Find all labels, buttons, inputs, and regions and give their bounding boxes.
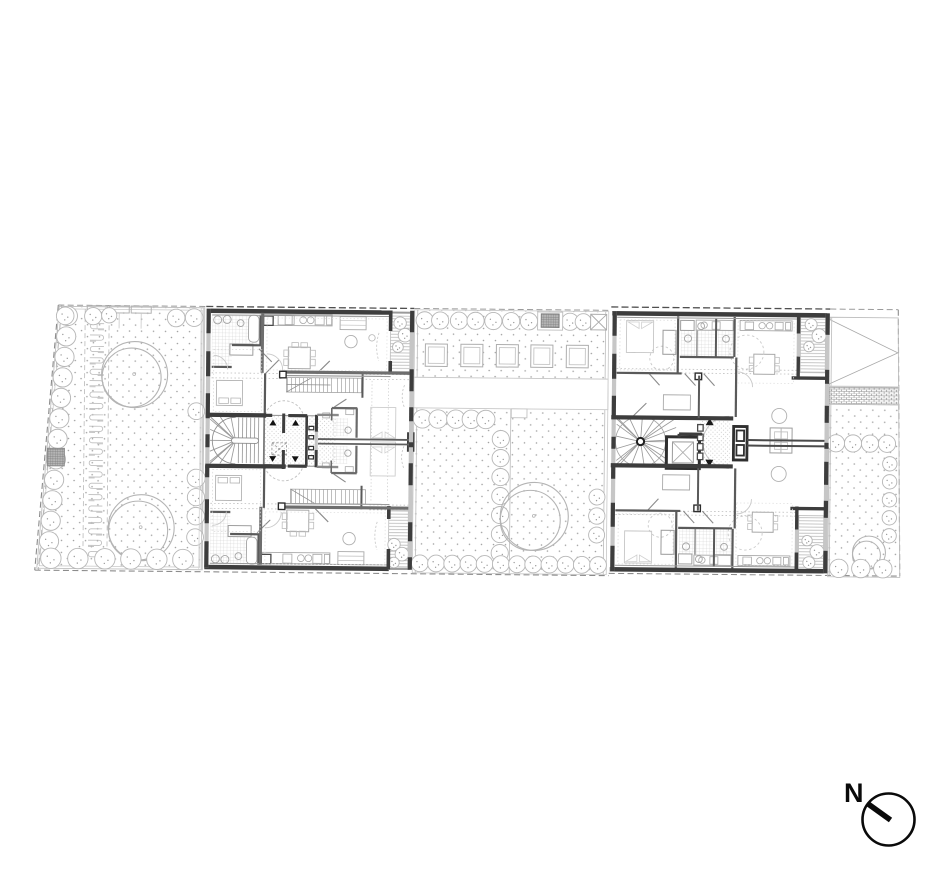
svg-text:N: N xyxy=(844,778,864,808)
